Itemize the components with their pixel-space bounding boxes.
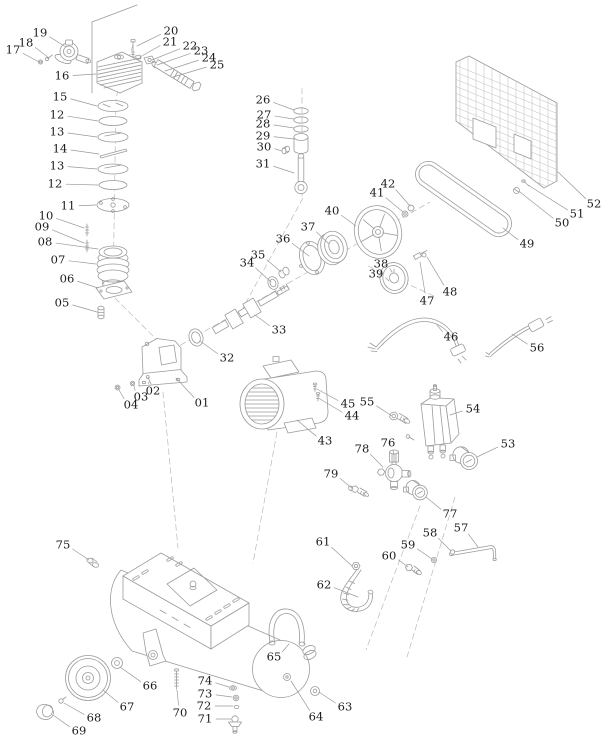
leader-line-13 <box>68 133 97 137</box>
leader-line-17 <box>23 53 39 62</box>
leader-line-19 <box>50 37 66 47</box>
belt-guard <box>450 50 562 195</box>
part-label-19: 19 <box>33 26 48 40</box>
leader-line-12 <box>68 116 98 121</box>
leader-line-66 <box>120 667 141 682</box>
part-label-56: 56 <box>530 341 545 355</box>
leader-line-42 <box>396 190 410 206</box>
leader-line-35 <box>267 260 281 272</box>
part-label-69: 69 <box>72 724 87 738</box>
pressure-gauge-large <box>450 447 478 470</box>
leader-line-59 <box>418 549 432 559</box>
piston-group <box>282 108 308 194</box>
leader-line-78 <box>370 454 383 467</box>
part-label-42: 42 <box>381 177 396 191</box>
part-label-17: 17 <box>6 43 21 57</box>
part-label-75: 75 <box>56 538 71 552</box>
leader-line-55 <box>377 406 392 416</box>
part-label-67: 67 <box>120 700 135 714</box>
diagram-stage: 1918171615121314131211100908070605202122… <box>0 0 615 755</box>
leader-line-57 <box>468 534 478 547</box>
leader-line-68 <box>64 703 84 714</box>
part-label-05: 05 <box>55 296 70 310</box>
part-label-47: 47 <box>420 294 435 308</box>
leader-line-13 <box>68 167 97 169</box>
v-belt <box>416 161 512 236</box>
leader-line-75 <box>73 549 89 560</box>
part-label-48: 48 <box>443 285 458 299</box>
leader-line-20 <box>137 34 161 46</box>
part-label-12: 12 <box>48 177 63 191</box>
leader-line-27 <box>275 116 294 119</box>
part-label-25: 25 <box>210 58 225 72</box>
guard-screws <box>514 180 530 194</box>
part-label-53: 53 <box>501 437 516 451</box>
part-label-49: 49 <box>520 237 535 251</box>
regulator-valve <box>378 450 411 490</box>
breather-plug <box>98 306 104 319</box>
part-label-01: 01 <box>195 396 210 410</box>
part-label-52: 52 <box>587 197 602 211</box>
filter-screws <box>38 55 52 64</box>
tank-handle <box>269 609 305 646</box>
part-label-08: 08 <box>38 235 53 249</box>
part-label-62: 62 <box>317 578 332 592</box>
part-label-21: 21 <box>163 35 178 49</box>
part-label-33: 33 <box>272 323 287 337</box>
leader-line-24 <box>165 60 198 71</box>
part-label-65: 65 <box>267 650 282 664</box>
part-label-76: 76 <box>381 436 396 450</box>
wheel-group <box>34 656 122 722</box>
part-label-46: 46 <box>444 330 459 344</box>
part-label-12: 12 <box>50 108 65 122</box>
axle-pin <box>59 699 63 703</box>
part-label-79: 79 <box>324 467 339 481</box>
part-label-70: 70 <box>173 706 188 720</box>
air-filter <box>54 40 91 65</box>
leader-line-12 <box>66 184 98 185</box>
head-bolt <box>131 40 141 60</box>
leader-line-60 <box>399 560 408 567</box>
part-label-64: 64 <box>309 710 324 724</box>
leader-line-11 <box>79 205 96 206</box>
part-label-44: 44 <box>345 409 360 423</box>
part-label-77: 77 <box>443 507 458 521</box>
leader-line-10 <box>56 218 84 228</box>
leader-line-69 <box>53 715 70 727</box>
leader-line-29 <box>274 137 294 139</box>
part-label-34: 34 <box>240 256 255 270</box>
pressure-gauge-small <box>404 481 428 500</box>
crankcase <box>139 339 187 387</box>
part-label-36: 36 <box>276 232 291 246</box>
leader-line-23 <box>157 53 191 65</box>
part-label-51: 51 <box>570 207 585 221</box>
leader-line-40 <box>341 215 356 226</box>
part-label-16: 16 <box>55 69 70 83</box>
leader-line-58 <box>438 538 451 551</box>
part-label-30: 30 <box>257 140 272 154</box>
cylinder-gasket <box>96 281 132 299</box>
leader-line-67 <box>103 690 118 702</box>
leader-line-53 <box>477 447 498 457</box>
leader-line-74 <box>216 683 229 687</box>
part-label-40: 40 <box>325 204 340 218</box>
part-label-61: 61 <box>316 535 331 549</box>
part-label-74: 74 <box>198 674 213 688</box>
leader-line-47 <box>420 262 425 293</box>
pressure-switch <box>406 385 459 460</box>
check-valve <box>390 412 411 424</box>
part-label-54: 54 <box>466 402 481 416</box>
mount-stud <box>175 669 179 689</box>
part-label-63: 63 <box>338 700 353 714</box>
leader-line-79 <box>340 479 353 489</box>
part-label-26: 26 <box>256 93 271 107</box>
leader-line-73 <box>216 695 232 697</box>
leader-line-05 <box>73 305 97 312</box>
cylinder-head <box>97 52 142 93</box>
outlet-bolt <box>144 56 201 91</box>
flywheel <box>348 200 407 263</box>
part-label-59: 59 <box>401 538 416 552</box>
leader-line-16 <box>73 74 96 76</box>
leader-line-77 <box>426 497 441 509</box>
part-label-58: 58 <box>423 526 438 540</box>
drain-hose <box>341 563 374 612</box>
part-label-43: 43 <box>318 434 333 448</box>
valve-plate-stack <box>97 101 129 213</box>
leader-line-21 <box>140 46 160 57</box>
flywheel-washer-nut <box>402 205 414 217</box>
leader-line-09 <box>52 230 84 243</box>
part-label-04: 04 <box>124 398 139 412</box>
leader-line-30 <box>275 149 282 151</box>
oil-seal <box>187 327 206 348</box>
leader-line-26 <box>273 102 294 110</box>
part-label-13: 13 <box>50 159 65 173</box>
part-label-68: 68 <box>87 711 102 725</box>
part-label-32: 32 <box>220 351 235 365</box>
leader-line-32 <box>200 341 218 354</box>
part-label-60: 60 <box>382 549 397 563</box>
part-label-15: 15 <box>53 90 68 104</box>
part-label-31: 31 <box>256 157 271 171</box>
exploded-parts-diagram: 1918171615121314131211100908070605202122… <box>0 0 615 755</box>
part-label-06: 06 <box>60 272 75 286</box>
part-label-72: 72 <box>197 699 212 713</box>
part-label-78: 78 <box>355 442 370 456</box>
part-label-14: 14 <box>53 142 68 156</box>
leader-line-18 <box>35 47 49 58</box>
part-label-66: 66 <box>143 679 158 693</box>
leader-line-07 <box>69 261 96 264</box>
leader-line-61 <box>331 547 352 566</box>
leader-line-70 <box>177 690 179 705</box>
pulley-bolt <box>413 251 427 260</box>
leader-line-06 <box>78 281 98 288</box>
part-label-55: 55 <box>360 395 375 409</box>
part-label-07: 07 <box>51 253 66 267</box>
leader-line-33 <box>255 315 270 326</box>
part-label-71: 71 <box>198 712 213 726</box>
leader-line-50 <box>520 192 553 218</box>
leader-line-52 <box>558 172 586 199</box>
part-label-45: 45 <box>341 397 356 411</box>
part-label-18: 18 <box>19 36 34 50</box>
part-label-13: 13 <box>50 125 65 139</box>
part-label-39: 39 <box>369 267 384 281</box>
leader-line-48 <box>427 257 444 285</box>
leader-line-14 <box>71 150 99 154</box>
leader-line-28 <box>274 125 294 128</box>
leader-line-34 <box>256 268 271 282</box>
part-label-50: 50 <box>555 216 570 230</box>
leader-line-56 <box>512 334 527 344</box>
part-label-09: 09 <box>35 220 50 234</box>
leader-line-63 <box>319 692 335 703</box>
part-label-11: 11 <box>61 199 76 213</box>
tank-plug-2 <box>311 687 320 696</box>
leader-line-15 <box>71 99 97 106</box>
part-label-57: 57 <box>454 521 469 535</box>
leader-line-51 <box>528 185 568 210</box>
motor <box>240 357 328 434</box>
part-label-37: 37 <box>301 220 316 234</box>
wheel-washer <box>112 658 123 669</box>
leader-line-08 <box>56 243 98 249</box>
leader-line-31 <box>274 166 294 173</box>
drain-valve-stack <box>229 686 242 733</box>
